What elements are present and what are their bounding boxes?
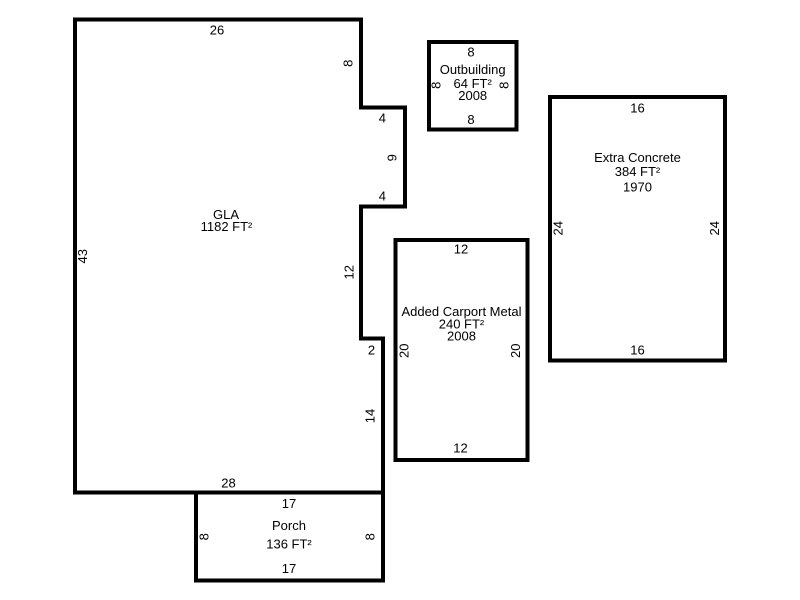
svg-text:20: 20 <box>397 344 412 358</box>
svg-text:Porch: Porch <box>272 518 306 533</box>
svg-text:43: 43 <box>75 249 90 263</box>
svg-text:14: 14 <box>363 409 378 423</box>
svg-text:8: 8 <box>467 112 474 127</box>
svg-text:24: 24 <box>707 221 722 235</box>
svg-text:8: 8 <box>467 45 474 60</box>
svg-text:12: 12 <box>453 441 467 456</box>
svg-text:12: 12 <box>454 242 468 257</box>
svg-text:2: 2 <box>368 343 375 358</box>
svg-text:17: 17 <box>282 561 296 576</box>
svg-text:8: 8 <box>197 533 212 540</box>
svg-text:2008: 2008 <box>447 328 476 343</box>
svg-text:17: 17 <box>282 496 296 511</box>
svg-text:8: 8 <box>497 82 512 89</box>
svg-text:4: 4 <box>379 111 386 126</box>
svg-text:20: 20 <box>508 344 523 358</box>
svg-text:2008: 2008 <box>458 88 487 103</box>
svg-text:136 FT²: 136 FT² <box>266 537 312 552</box>
svg-text:16: 16 <box>630 101 644 116</box>
svg-text:8: 8 <box>341 60 356 67</box>
svg-text:9: 9 <box>385 154 400 161</box>
svg-text:24: 24 <box>551 221 566 235</box>
svg-text:1182 FT²: 1182 FT² <box>201 219 253 234</box>
svg-text:4: 4 <box>379 188 386 203</box>
svg-text:16: 16 <box>630 343 644 358</box>
svg-text:26: 26 <box>210 23 224 38</box>
svg-text:12: 12 <box>342 265 357 279</box>
svg-text:384 FT²: 384 FT² <box>615 164 661 179</box>
svg-text:1970: 1970 <box>623 180 652 195</box>
svg-text:8: 8 <box>429 82 444 89</box>
svg-text:8: 8 <box>363 533 378 540</box>
svg-text:28: 28 <box>221 476 235 491</box>
